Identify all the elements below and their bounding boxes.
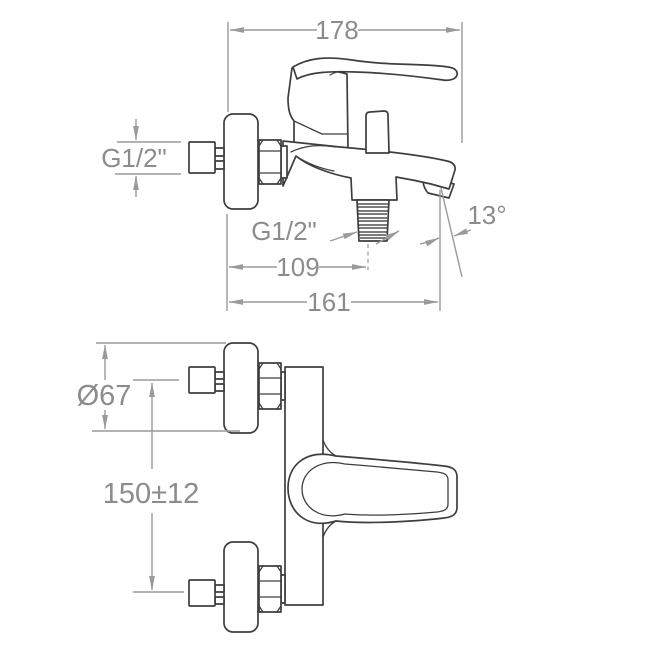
- wall-flange-bottom: [224, 542, 258, 632]
- technical-drawing-page: 178 G1/2" G1/2" 109 161 1: [0, 0, 650, 650]
- dim-150-label: 150±12: [103, 478, 200, 510]
- dim-inlet-thread-label: G1/2": [101, 143, 167, 173]
- wall-flange: [224, 114, 258, 209]
- wall-flange-top: [224, 343, 258, 433]
- union-collar: [281, 146, 287, 178]
- inlet-connector: [189, 142, 215, 173]
- angle-reference-line: [441, 188, 462, 277]
- inlet-tabs-bottom: [215, 585, 224, 604]
- drawing-canvas: 178 G1/2" G1/2" 109 161 1: [0, 0, 650, 650]
- dim-109-label: 109: [276, 252, 319, 282]
- inlet-connector-bottom: [189, 580, 215, 606]
- plan-view-faucet: [189, 343, 457, 632]
- dim-angle-label: 13°: [467, 200, 506, 230]
- inlet-tabs: [215, 148, 224, 169]
- side-view: 178 G1/2" G1/2" 109 161 1: [101, 15, 506, 317]
- dim-178-label: 178: [315, 15, 358, 45]
- union-nut-bottom: [259, 566, 281, 612]
- lever-housing: [288, 68, 348, 150]
- union-nut-top: [259, 363, 281, 409]
- angle-arc-left: [420, 238, 439, 244]
- dim-161-label: 161: [307, 287, 350, 317]
- union-nut: [259, 140, 281, 184]
- angle-arc-right: [454, 230, 471, 236]
- side-view-faucet: [189, 58, 457, 241]
- plan-view: Ø67 150±12: [77, 343, 457, 632]
- dim-outlet-thread-leader-1: [330, 232, 357, 241]
- dim-outlet-thread-label: G1/2": [251, 216, 317, 246]
- inlet-tabs-top: [215, 372, 224, 391]
- diverter-knob: [366, 111, 389, 153]
- dim-67-label: Ø67: [77, 380, 132, 412]
- inlet-connector-top: [189, 367, 215, 393]
